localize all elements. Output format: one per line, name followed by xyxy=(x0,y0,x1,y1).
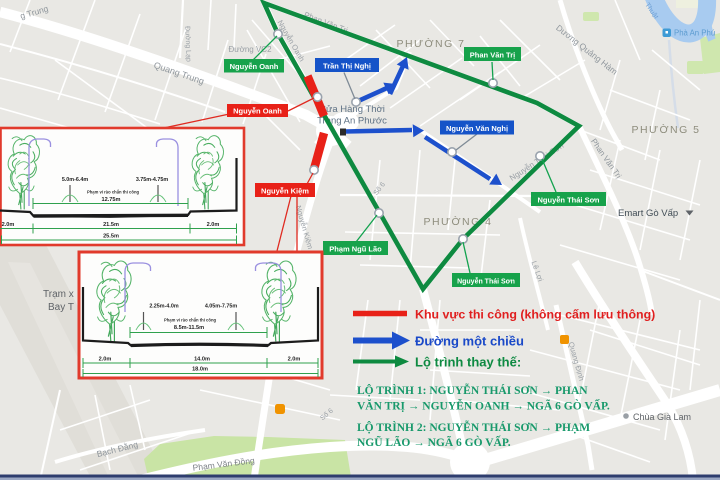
svg-text:Đường Lạp: Đường Lạp xyxy=(183,26,191,62)
svg-text:Phạm vi rào chắn thi công: Phạm vi rào chắn thi công xyxy=(87,190,140,195)
svg-text:2.0m: 2.0m xyxy=(99,357,112,363)
svg-text:Phan Văn Trị: Phan Văn Trị xyxy=(470,51,515,60)
svg-text:4.05m-7.75m: 4.05m-7.75m xyxy=(205,304,238,310)
svg-text:Đường một chiều: Đường một chiều xyxy=(415,334,524,349)
svg-text:NGŨ LÃO → NGÃ 6 GÒ VẤP.: NGŨ LÃO → NGÃ 6 GÒ VẤP. xyxy=(357,434,511,449)
svg-text:2.0m: 2.0m xyxy=(207,222,220,228)
svg-text:Đường VC2: Đường VC2 xyxy=(228,45,272,54)
svg-text:Phà An Phú: Phà An Phú xyxy=(674,29,715,38)
svg-text:Trạm x: Trạm x xyxy=(43,289,74,300)
svg-text:PHƯỜNG 5: PHƯỜNG 5 xyxy=(631,123,700,136)
svg-text:3.75m-4.75m: 3.75m-4.75m xyxy=(136,177,169,183)
svg-text:Chùa Già Lam: Chùa Già Lam xyxy=(633,412,691,422)
svg-text:Emart Gò Vấp: Emart Gò Vấp xyxy=(618,208,678,219)
svg-text:5.0m-6.4m: 5.0m-6.4m xyxy=(62,177,89,183)
svg-text:2.0m: 2.0m xyxy=(2,222,15,228)
svg-text:2.0m: 2.0m xyxy=(288,357,301,363)
svg-text:8.5m-11.5m: 8.5m-11.5m xyxy=(174,325,204,331)
svg-text:Trần Thị Nghị: Trần Thị Nghị xyxy=(323,62,371,71)
svg-text:2.25m-4.0m: 2.25m-4.0m xyxy=(149,304,179,310)
svg-text:Cửa Hàng Thời: Cửa Hàng Thời xyxy=(319,104,385,115)
svg-text:Nguyễn Văn Nghị: Nguyễn Văn Nghị xyxy=(446,124,508,133)
svg-text:PHƯỜNG 7: PHƯỜNG 7 xyxy=(396,37,465,50)
svg-text:Nguyễn Oanh: Nguyễn Oanh xyxy=(230,62,279,71)
svg-text:Bay T: Bay T xyxy=(48,302,74,313)
svg-text:14.0m: 14.0m xyxy=(194,357,210,363)
svg-text:Nguyễn Kiệm: Nguyễn Kiệm xyxy=(261,187,309,196)
svg-text:Khu vực thi công (không cấm lư: Khu vực thi công (không cấm lưu thông) xyxy=(415,308,655,322)
svg-text:Phạm vi rào chắn thi công: Phạm vi rào chắn thi công xyxy=(164,318,217,323)
svg-text:Phạm Ngũ Lão: Phạm Ngũ Lão xyxy=(329,245,382,254)
svg-text:21.5m: 21.5m xyxy=(103,222,119,228)
svg-text:Lộ trình thay thế:: Lộ trình thay thế: xyxy=(415,355,521,370)
svg-text:LỘ TRÌNH 1: NGUYỄN THÁI SƠN: LỘ TRÌNH 1: NGUYỄN THÁI SƠN → PHAN xyxy=(357,382,588,397)
svg-text:12.75m: 12.75m xyxy=(102,197,121,203)
svg-text:18.0m: 18.0m xyxy=(192,367,208,373)
svg-text:LỘ TRÌNH 2: NGUYỄN THÁI SƠN: LỘ TRÌNH 2: NGUYỄN THÁI SƠN → PHẠM xyxy=(357,419,590,434)
svg-text:Nguyễn Thái Sơn: Nguyễn Thái Sơn xyxy=(537,196,599,205)
svg-text:25.5m: 25.5m xyxy=(103,234,119,240)
svg-text:VĂN TRỊ → NGUYỄN OANH → NGÃ 6: VĂN TRỊ → NGUYỄN OANH → NGÃ 6 GÒ VẤP. xyxy=(357,398,610,413)
svg-text:Nguyễn Oanh: Nguyễn Oanh xyxy=(233,107,282,116)
svg-text:Nguyễn Thái Sơn: Nguyễn Thái Sơn xyxy=(457,277,515,286)
